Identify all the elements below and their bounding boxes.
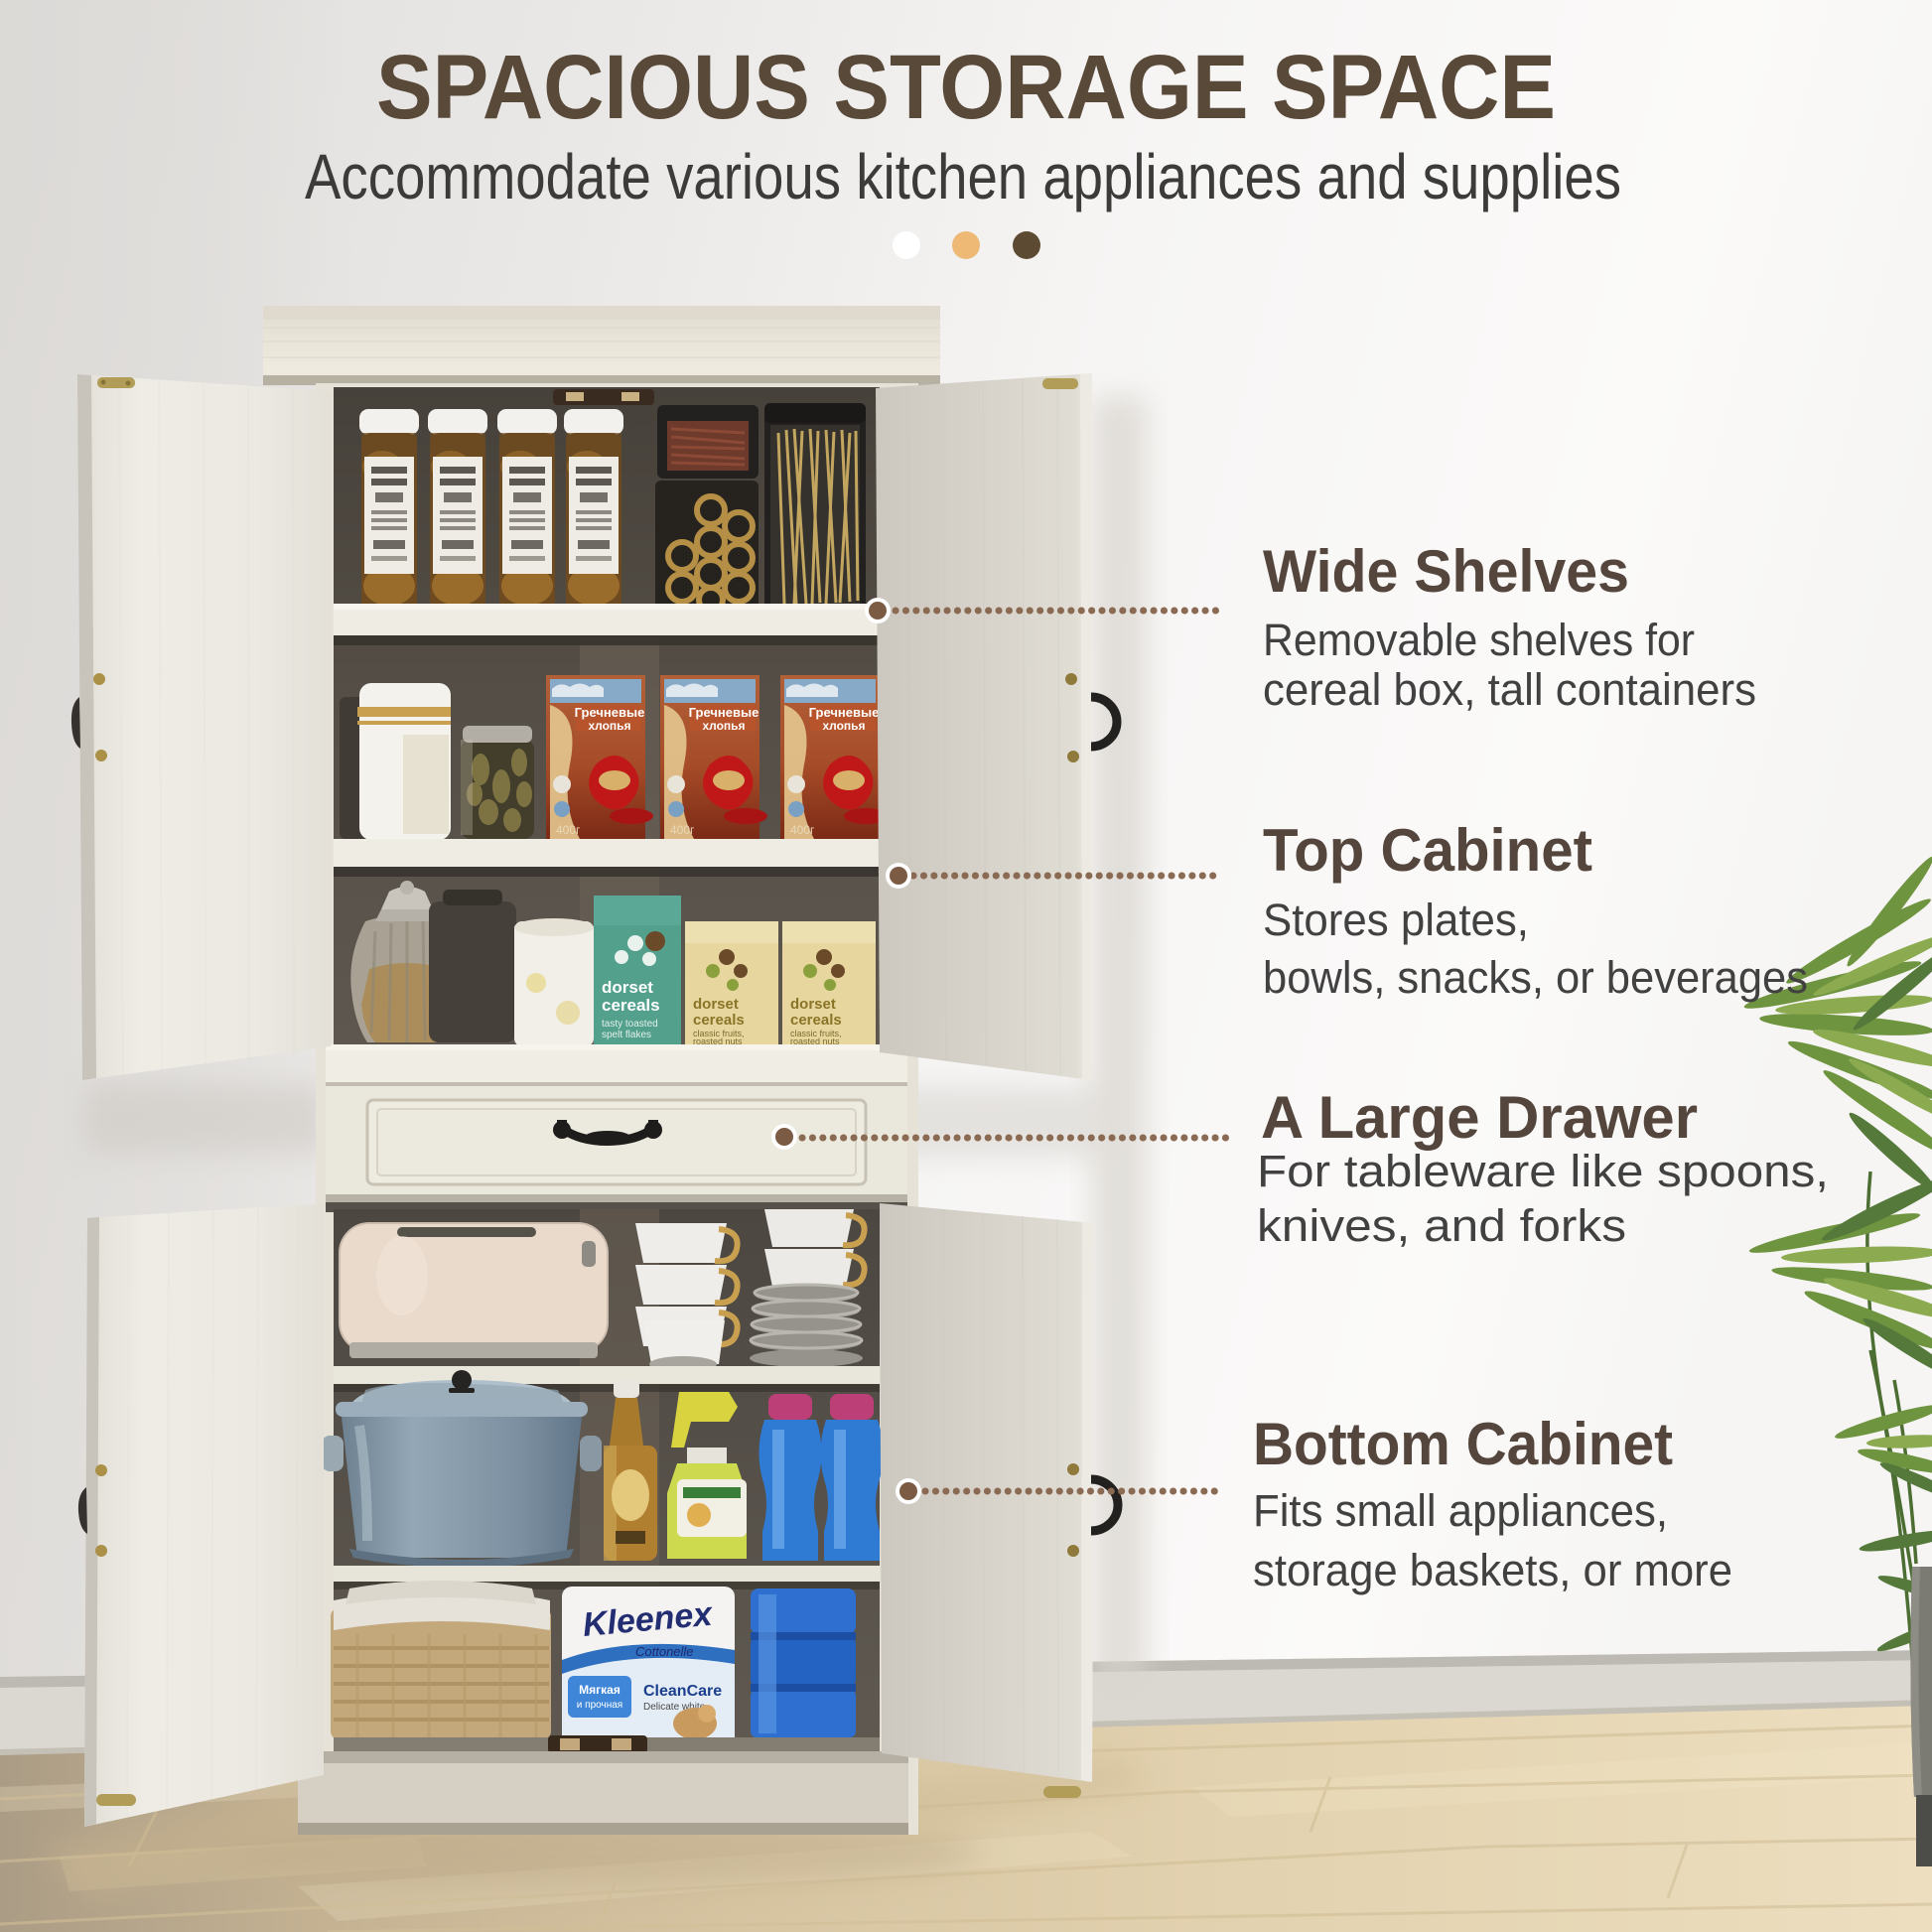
svg-text:For tableware like spoons,: For tableware like spoons, (1257, 1146, 1829, 1196)
svg-text:tasty toasted: tasty toasted (602, 1019, 658, 1030)
svg-text:и прочная: и прочная (577, 1700, 622, 1711)
svg-text:spelt flakes: spelt flakes (602, 1030, 651, 1040)
svg-text:Removable shelves for: Removable shelves for (1263, 615, 1695, 665)
svg-text:Accommodate various kitchen ap: Accommodate various kitchen appliances a… (305, 141, 1621, 212)
svg-text:storage baskets, or more: storage baskets, or more (1253, 1545, 1732, 1595)
svg-text:Cottonelle: Cottonelle (635, 1644, 694, 1659)
svg-text:хлопья: хлопья (588, 719, 630, 733)
svg-text:Fits small appliances,: Fits small appliances, (1253, 1485, 1668, 1536)
svg-text:Wide Shelves: Wide Shelves (1263, 538, 1629, 605)
svg-text:cereal box, tall containers: cereal box, tall containers (1263, 664, 1756, 715)
svg-text:knives, and forks: knives, and forks (1257, 1200, 1626, 1251)
svg-text:Bottom Cabinet: Bottom Cabinet (1253, 1411, 1673, 1477)
svg-text:CleanCare: CleanCare (643, 1683, 722, 1700)
svg-text:Top Cabinet: Top Cabinet (1263, 817, 1592, 884)
svg-text:SPACIOUS STORAGE SPACE: SPACIOUS STORAGE SPACE (376, 37, 1556, 138)
svg-text:400г: 400г (556, 823, 581, 837)
svg-text:dorset: dorset (602, 978, 653, 997)
svg-text:dorset: dorset (693, 996, 739, 1013)
svg-text:Гречневые: Гречневые (575, 705, 645, 720)
svg-text:cereals: cereals (693, 1012, 745, 1029)
svg-text:Мягкая: Мягкая (579, 1683, 621, 1697)
svg-text:A Large Drawer: A Large Drawer (1261, 1084, 1698, 1151)
svg-text:bowls, snacks, or beverages: bowls, snacks, or beverages (1263, 952, 1808, 1003)
svg-text:Stores plates,: Stores plates, (1263, 895, 1529, 945)
svg-text:cereals: cereals (602, 996, 660, 1015)
